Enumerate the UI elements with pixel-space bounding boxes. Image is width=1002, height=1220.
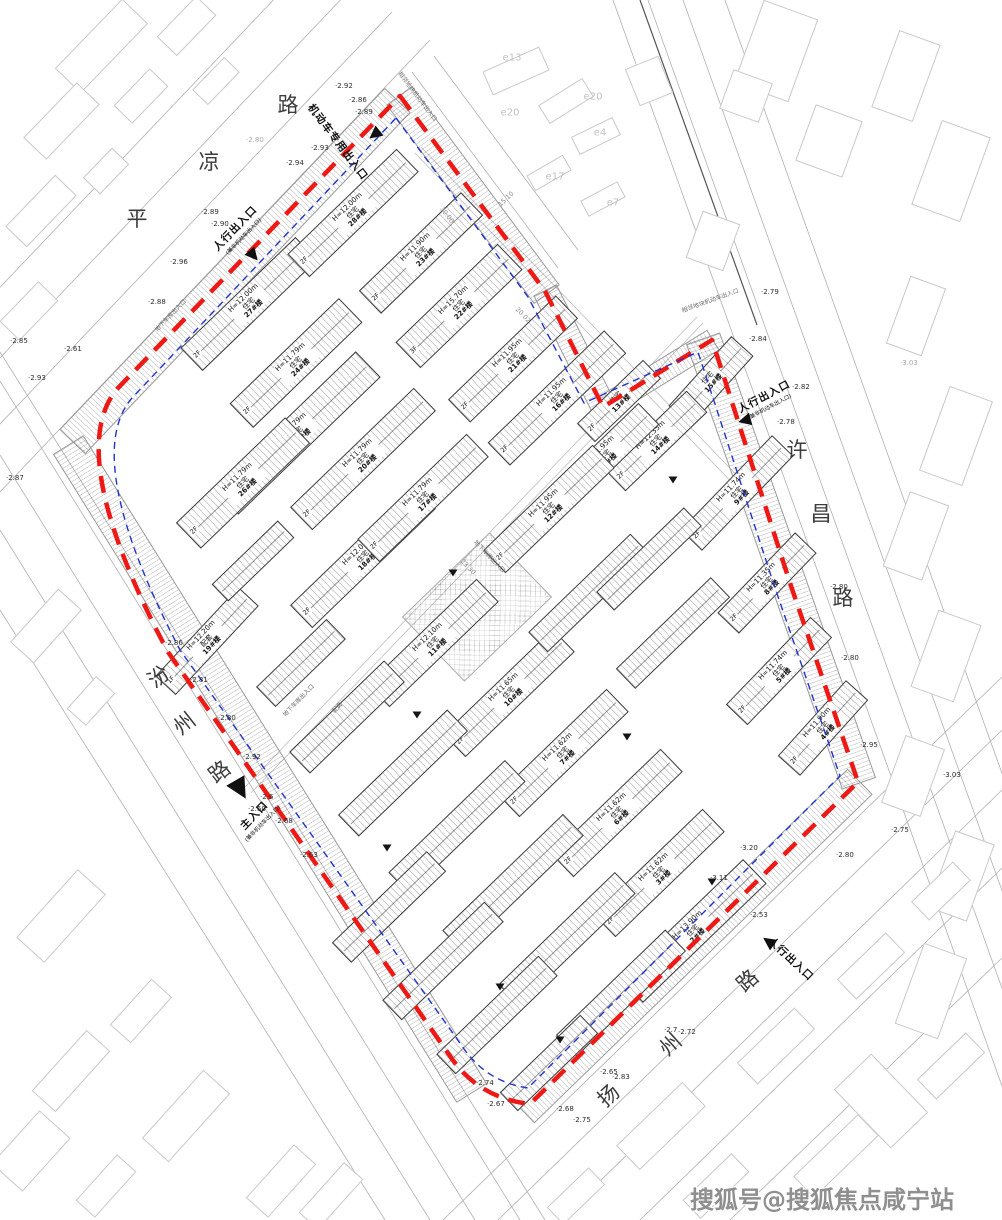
level-marker-icon <box>496 984 505 991</box>
dimension-label: 30.00 <box>438 205 456 225</box>
spot-elevation-label: ·2.74 <box>476 1079 494 1087</box>
spot-elevation-label: ·2.86 <box>349 96 367 104</box>
spot-elevation-label: ·2.81 <box>190 676 208 684</box>
entrance-label: 人行出入口(兼非机动车出入口) <box>735 376 797 423</box>
spot-elevation-label: ·2.93 <box>28 374 46 382</box>
spot-elevation-label: ·2.89 <box>201 208 219 216</box>
spot-elevation-label: ·3.20 <box>740 844 758 852</box>
level-marker-icon <box>556 1037 565 1044</box>
dimension-label: 23.30 <box>459 558 478 577</box>
spot-elevation-label: ·2.80 <box>830 583 848 591</box>
spot-elevation-label: ·2.6 <box>260 793 273 801</box>
spot-elevation-label: ·2.79 <box>761 288 779 296</box>
watermark-text: 搜狐号@搜狐焦点咸宁站 <box>690 1180 954 1215</box>
dimension-label: 15.10 <box>497 190 516 209</box>
annotation-label: 地下车库出入口 <box>280 682 316 718</box>
spot-elevation-label: ·2.92 <box>335 82 353 90</box>
spot-elevation-label: ·2.92 <box>243 753 261 761</box>
spot-elevation-label: ·2.83 <box>612 1073 630 1081</box>
spot-elevation-label: ·2.72 <box>678 1028 696 1036</box>
road-name-char: 路 <box>278 89 299 119</box>
level-marker-icon <box>623 734 632 741</box>
spot-elevation-label: ·2.80 <box>836 851 854 859</box>
road-name-char: 昌 <box>811 498 832 528</box>
dimension-label: 20.02 <box>514 306 533 325</box>
spot-elevation-label: ·2.75 <box>891 826 909 834</box>
spot-elevation-label: ·2.60 <box>248 805 266 813</box>
spot-elevation-label: ·2.84 <box>749 335 767 343</box>
level-marker-icon <box>708 879 717 886</box>
spot-elevation-label: ·2.95 <box>860 741 878 749</box>
spot-elevation-label: ·2.86 <box>165 639 183 647</box>
level-marker-icon <box>449 570 458 577</box>
spot-elevation-label: ·2.80 <box>246 136 264 144</box>
spot-elevation-label: ·2.87 <box>6 474 24 482</box>
spot-elevation-label: ·2.89 <box>355 108 373 116</box>
spot-elevation-label: ·2.75 <box>573 1116 591 1124</box>
level-marker-icon <box>669 477 678 484</box>
road-name-char: 凉 <box>199 146 220 176</box>
existing-building-label: e20 <box>584 92 603 103</box>
annotation-label: 相邻地块机动车出入口 <box>396 69 439 122</box>
spot-elevation-label: ·2.80 <box>841 654 859 662</box>
spot-elevation-label: ·2.94 <box>286 159 304 167</box>
spot-elevation-label: ·2.85 <box>10 337 28 345</box>
road-name-char: 路 <box>729 962 765 998</box>
road-name-char: 许 <box>787 434 808 464</box>
spot-elevation-label: ·2.67 <box>487 1100 505 1108</box>
existing-building-label: e13 <box>503 53 522 64</box>
annotation-label: 配套 <box>330 700 345 715</box>
spot-elevation-label: ·2.68 <box>556 1105 574 1113</box>
road-name-char: 平 <box>127 203 148 233</box>
annotation-label: 相邻地块机动车出入口 <box>680 286 739 315</box>
spot-elevation-label: ·2.88 <box>148 298 166 306</box>
spot-elevation-label: ·3.03 <box>943 771 961 779</box>
existing-building-label: e20 <box>501 108 520 119</box>
spot-elevation-label: ·2.78 <box>777 418 795 426</box>
existing-building-label: e4 <box>594 128 607 139</box>
spot-elevation-label: ·2.96 <box>170 258 188 266</box>
spot-elevation-label: ·2.90 <box>211 220 229 228</box>
entrance-arrow-icon <box>244 246 262 264</box>
spot-elevation-label: ·2.53 <box>750 911 768 919</box>
level-marker-icon <box>413 712 422 719</box>
entrance-arrow-icon <box>365 125 383 143</box>
spot-elevation-label: ·3.03 <box>900 359 918 367</box>
spot-elevation-label: ·2.68 <box>275 817 293 825</box>
road-name-char: 州 <box>166 705 201 742</box>
spot-elevation-label: ·2.82 <box>792 383 810 391</box>
annotation-label: 地下车库出入口 <box>472 538 508 574</box>
level-marker-icon <box>383 845 392 852</box>
spot-elevation-label: ·2.7 <box>664 1026 677 1034</box>
existing-building-label: e7 <box>607 198 620 209</box>
road-name-char: 汾 <box>140 658 175 695</box>
labels-layer: 平凉路许昌路汾州路扬州路人行出入口(兼非机动车出入口)机动车专用出入口人行出入口… <box>0 0 1002 1220</box>
spot-elevation-label: ·2.61 <box>64 345 82 353</box>
spot-elevation-label: ·2.80 <box>218 714 236 722</box>
spot-elevation-label: ·2.93 <box>311 144 329 152</box>
existing-building-label: e17 <box>546 172 565 183</box>
site-plan-canvas: H=12.00m住宅27#楼2FH=12.00m住宅28#楼2FH=11.90m… <box>0 0 1002 1220</box>
road-name-char: 扬 <box>590 1077 626 1113</box>
spot-elevation-label: ·2.63 <box>300 851 318 859</box>
